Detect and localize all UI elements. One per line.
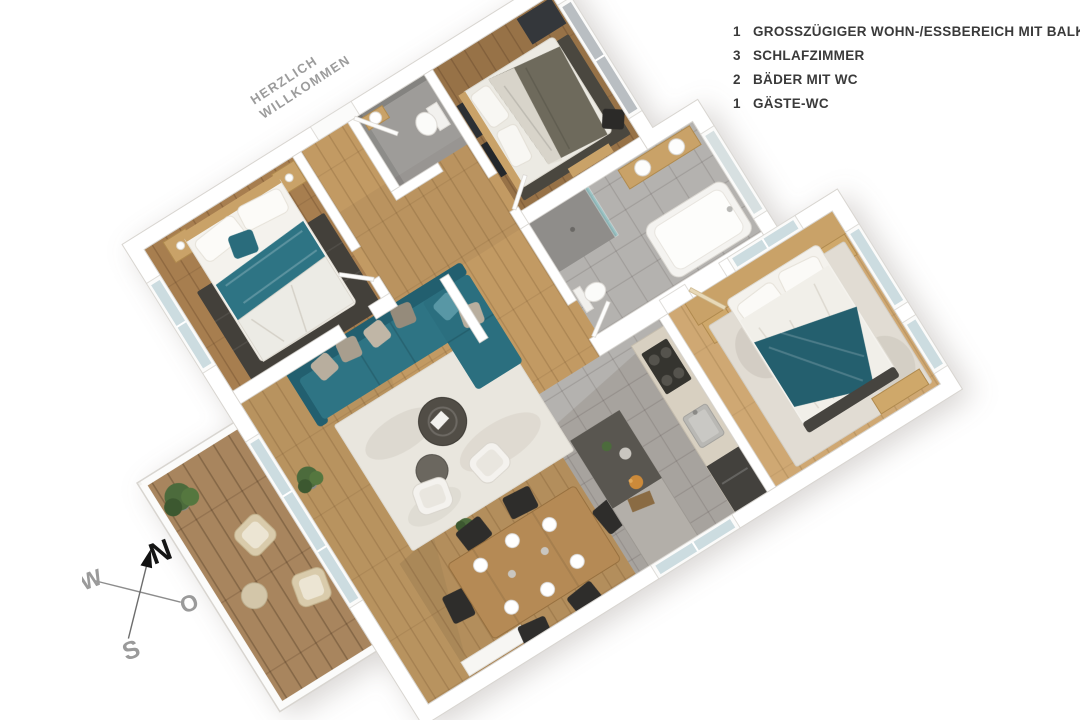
desk-chair (602, 109, 625, 130)
floorplan-image: 1 GROSSZÜGIGER WOHN-/ESSBEREICH MIT BALK… (0, 0, 1080, 720)
compass-east: O (176, 588, 202, 619)
legend-count: 1 (733, 24, 753, 39)
legend-item: 3 SCHLAFZIMMER (733, 48, 1080, 63)
legend-count: 2 (733, 72, 753, 87)
legend-item: 1 GROSSZÜGIGER WOHN-/ESSBEREICH MIT BALK… (733, 24, 1080, 39)
legend: 1 GROSSZÜGIGER WOHN-/ESSBEREICH MIT BALK… (733, 24, 1080, 120)
legend-item: 1 GÄSTE-WC (733, 96, 1080, 111)
legend-label: BÄDER MIT WC (753, 72, 858, 87)
compass-south: S (119, 634, 144, 660)
compass-rose: N W O S (82, 530, 206, 660)
legend-count: 1 (733, 96, 753, 111)
legend-label: GROSSZÜGIGER WOHN-/ESSBEREICH MIT BALKON (753, 24, 1080, 39)
legend-item: 2 BÄDER MIT WC (733, 72, 1080, 87)
legend-label: GÄSTE-WC (753, 96, 829, 111)
compass-west: W (82, 563, 106, 595)
legend-count: 3 (733, 48, 753, 63)
legend-label: SCHLAFZIMMER (753, 48, 865, 63)
